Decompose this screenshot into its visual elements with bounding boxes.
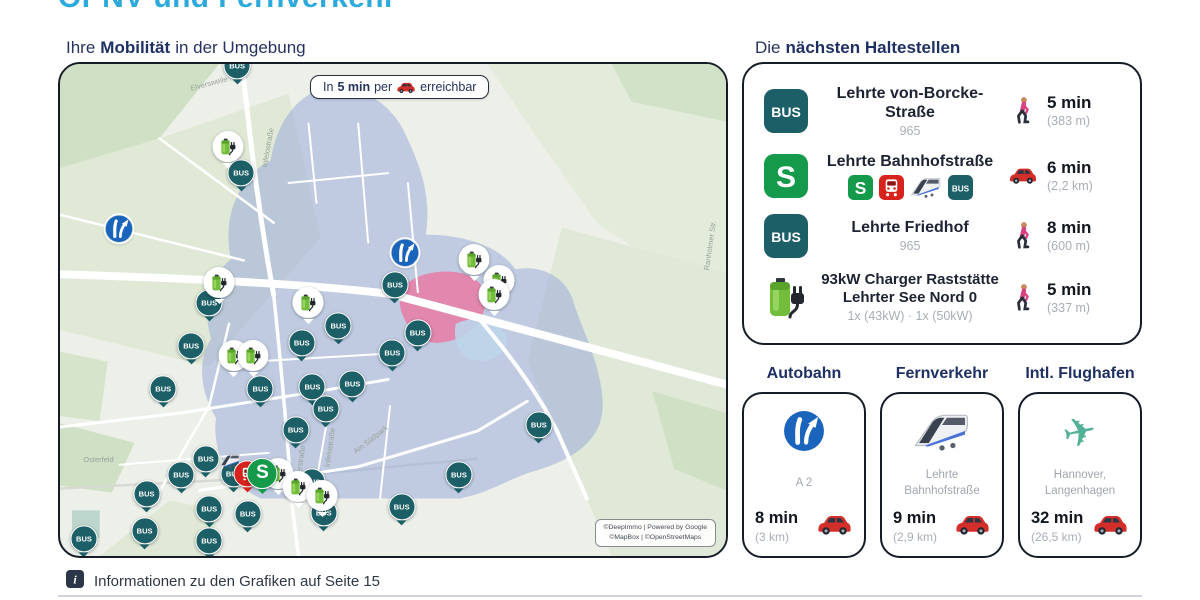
stop-eta: 6 min(2,2 km) (1008, 158, 1124, 193)
eta-values: 9 min(2,9 km) (893, 509, 937, 544)
eta-time: 9 min (893, 509, 937, 528)
svg-text:S: S (854, 178, 866, 198)
eta-time: 8 min (755, 509, 798, 528)
walk-icon (1008, 221, 1038, 250)
svg-text:BUS: BUS (951, 184, 969, 193)
bus-stop-marker[interactable]: BUS (70, 526, 97, 553)
bus-stop-marker[interactable]: BUS (325, 312, 352, 339)
ev-charger-marker[interactable] (307, 480, 338, 511)
motorway-marker[interactable] (391, 239, 419, 267)
bus-stop-marker[interactable]: BUS (282, 416, 309, 443)
eta-distance: (2,2 km) (1047, 179, 1093, 193)
bus-badge: BUS (760, 89, 812, 133)
car-icon (954, 513, 991, 541)
stop-name: 93kW Charger RaststätteLehrter See Nord … (820, 271, 1000, 307)
walk-icon (1008, 96, 1038, 125)
travel-card-label: A 2 (796, 459, 813, 509)
eta-distance: (337 m) (1047, 301, 1091, 315)
bus-stop-marker[interactable]: BUS (404, 319, 431, 346)
bus-stop-marker[interactable]: BUS (312, 396, 339, 423)
travel-card-eta: 9 min(2,9 km) (891, 509, 993, 544)
stop-eta: 8 min(600 m) (1008, 218, 1124, 253)
bus-stop-marker[interactable]: BUS (133, 481, 160, 508)
eta-time: 8 min (1047, 218, 1091, 238)
eta-distance: (26,5 km) (1031, 530, 1083, 544)
ice-train-icon (913, 407, 971, 459)
bus-stop-marker[interactable]: BUS (379, 339, 406, 366)
eta-distance: (2,9 km) (893, 530, 937, 544)
stop-eta: 5 min(383 m) (1008, 93, 1124, 128)
travel-card-body: A 28 min(3 km) (742, 392, 866, 558)
heading-bold: nächsten Haltestellen (786, 38, 961, 58)
bus-icon: BUS (948, 175, 973, 200)
heading-prefix: Die (755, 38, 781, 58)
travel-card-fernverkehr: FernverkehrLehrte Bahnhofstraße9 min(2,9… (880, 365, 1004, 558)
legend-time: 5 min (337, 80, 370, 94)
walk-icon (1008, 283, 1038, 312)
info-icon: i (66, 570, 84, 593)
travel-card-heading: Autobahn (742, 365, 866, 383)
svg-text:BUS: BUS (771, 229, 801, 245)
stop-name: Lehrte Bahnhofstraße (820, 152, 1000, 171)
bus-stop-marker[interactable]: BUS (388, 494, 415, 521)
eta-distance: (3 km) (755, 530, 798, 544)
map-base-layer (60, 64, 726, 556)
attribution-line2: ©MapBox | ©OpenStreetMaps (604, 533, 708, 543)
stops-list: BUSLehrte von-Borcke-Straße9655 min(383 … (744, 64, 1140, 343)
bus-stop-marker[interactable]: BUS (131, 518, 158, 545)
eta-time: 5 min (1047, 280, 1091, 300)
page-title: ÖPNV und Fernverkehr (58, 0, 618, 15)
stop-info: 93kW Charger RaststätteLehrter See Nord … (820, 271, 1000, 323)
eta-values: 5 min(383 m) (1047, 93, 1091, 128)
eta-values: 5 min(337 m) (1047, 280, 1091, 315)
footer-text: Informationen zu den Grafiken auf Seite … (94, 573, 380, 590)
bus-stop-marker[interactable]: BUS (288, 329, 315, 356)
attribution-line1: ©DeepImmo | Powered by Google (604, 523, 708, 533)
bus-badge: BUS (760, 214, 812, 258)
travel-card-eta: 8 min(3 km) (753, 509, 855, 544)
eta-time: 5 min (1047, 93, 1091, 113)
bus-stop-marker[interactable]: BUS (192, 445, 219, 472)
bus-stop-marker[interactable]: BUS (339, 371, 366, 398)
page: ÖPNV und Fernverkehr Ihre Mobilität in d… (0, 0, 1200, 600)
bus-stop-marker[interactable]: BUS (445, 461, 472, 488)
car-icon (816, 513, 853, 541)
heading-prefix: Ihre (66, 38, 95, 58)
bus-stop-marker[interactable]: BUS (150, 376, 177, 403)
footer-note: i Informationen zu den Grafiken auf Seit… (66, 570, 380, 593)
stop-transport-modes: SBUS (820, 175, 1000, 200)
travel-card-eta: 32 min(26,5 km) (1029, 509, 1131, 544)
eta-values: 8 min(3 km) (755, 509, 798, 544)
car-icon (1092, 513, 1129, 541)
stop-row: SLehrte BahnhofstraßeSBUS6 min(2,2 km) (744, 152, 1140, 200)
travel-card-heading: Intl. Flughafen (1018, 365, 1142, 383)
sbahn-station-marker[interactable]: S (247, 458, 278, 489)
eta-distance: (600 m) (1047, 239, 1091, 253)
charger-icon (760, 274, 812, 320)
ev-charger-marker[interactable] (479, 279, 510, 310)
travel-card-heading: Fernverkehr (880, 365, 1004, 383)
legend-prefix: In (323, 80, 333, 94)
bus-stop-marker[interactable]: BUS (196, 528, 223, 555)
heading-suffix: in der Umgebung (175, 38, 305, 58)
legend-suffix: erreichbar (420, 80, 476, 94)
ev-charger-marker[interactable] (293, 287, 324, 318)
bottom-divider (58, 595, 1142, 597)
stop-lines: 1x (43kW) · 1x (50kW) (820, 309, 1000, 323)
eta-values: 6 min(2,2 km) (1047, 158, 1093, 193)
ev-charger-marker[interactable] (204, 267, 235, 298)
heading-bold: Mobilität (100, 38, 170, 58)
travel-card-label: Hannover,Langenhagen (1045, 459, 1115, 509)
stop-row: BUSLehrte Friedhof9658 min(600 m) (744, 214, 1140, 258)
motorway-icon (783, 407, 825, 459)
stop-info: Lehrte von-Borcke-Straße965 (820, 84, 1000, 138)
bus-stop-marker[interactable]: BUS (168, 461, 195, 488)
map-section-heading: Ihre Mobilität in der Umgebung (66, 38, 306, 58)
travel-cards: AutobahnA 28 min(3 km)FernverkehrLehrte … (742, 365, 1142, 558)
stop-name: Lehrte von-Borcke-Straße (820, 84, 1000, 122)
eta-time: 6 min (1047, 158, 1093, 178)
eta-values: 8 min(600 m) (1047, 218, 1091, 253)
map-attribution: ©DeepImmo | Powered by Google ©MapBox | … (595, 519, 717, 547)
ev-charger-marker[interactable] (459, 244, 490, 275)
eta-distance: (383 m) (1047, 114, 1091, 128)
eta-values: 32 min(26,5 km) (1031, 509, 1083, 544)
stop-eta: 5 min(337 m) (1008, 280, 1124, 315)
stop-row: 93kW Charger RaststätteLehrter See Nord … (744, 271, 1140, 323)
bus-stop-marker[interactable]: BUS (525, 411, 552, 438)
svg-text:BUS: BUS (771, 104, 801, 120)
bus-stop-marker[interactable]: BUS (247, 376, 274, 403)
regional-icon (879, 175, 904, 200)
map-legend: In 5 min per erreichbar (310, 75, 489, 99)
stop-info: Lehrte Friedhof965 (820, 218, 1000, 253)
travel-card-body: Lehrte Bahnhofstraße9 min(2,9 km) (880, 392, 1004, 558)
car-icon (396, 81, 416, 94)
stops-section-heading: Die nächsten Haltestellen (755, 38, 960, 58)
mobility-map[interactable]: ElversweileInfelostraßeRanholmer Str.Am … (58, 62, 728, 558)
bus-stop-marker[interactable]: BUS (381, 272, 408, 299)
travel-card-autobahn: AutobahnA 28 min(3 km) (742, 365, 866, 558)
stop-name: Lehrte Friedhof (820, 218, 1000, 237)
stop-lines: 965 (820, 124, 1000, 138)
bus-stop-marker[interactable]: BUS (196, 496, 223, 523)
stop-row: BUSLehrte von-Borcke-Straße9655 min(383 … (744, 84, 1140, 138)
travel-card-label: Lehrte Bahnhofstraße (891, 459, 993, 509)
stop-lines: 965 (820, 239, 1000, 253)
stop-info: Lehrte BahnhofstraßeSBUS (820, 152, 1000, 200)
ice-icon (910, 175, 942, 200)
svg-text:S: S (776, 161, 796, 194)
ev-charger-marker[interactable] (212, 131, 243, 162)
motorway-marker[interactable] (105, 215, 133, 243)
airplane-icon: ✈ (1063, 407, 1097, 459)
eta-time: 32 min (1031, 509, 1083, 528)
travel-card-body: ✈Hannover,Langenhagen32 min(26,5 km) (1018, 392, 1142, 558)
sbahn-badge: S (760, 154, 812, 198)
legend-mid: per (374, 80, 392, 94)
stops-card: BUSLehrte von-Borcke-Straße9655 min(383 … (742, 62, 1142, 345)
ev-charger-marker[interactable] (238, 340, 269, 371)
bus-stop-marker[interactable]: BUS (234, 500, 261, 527)
car-icon (1008, 165, 1038, 186)
travel-card-intl-flughafen: Intl. Flughafen✈Hannover,Langenhagen32 m… (1018, 365, 1142, 558)
sbahn-icon: S (848, 175, 873, 200)
bus-stop-marker[interactable]: BUS (178, 332, 205, 359)
